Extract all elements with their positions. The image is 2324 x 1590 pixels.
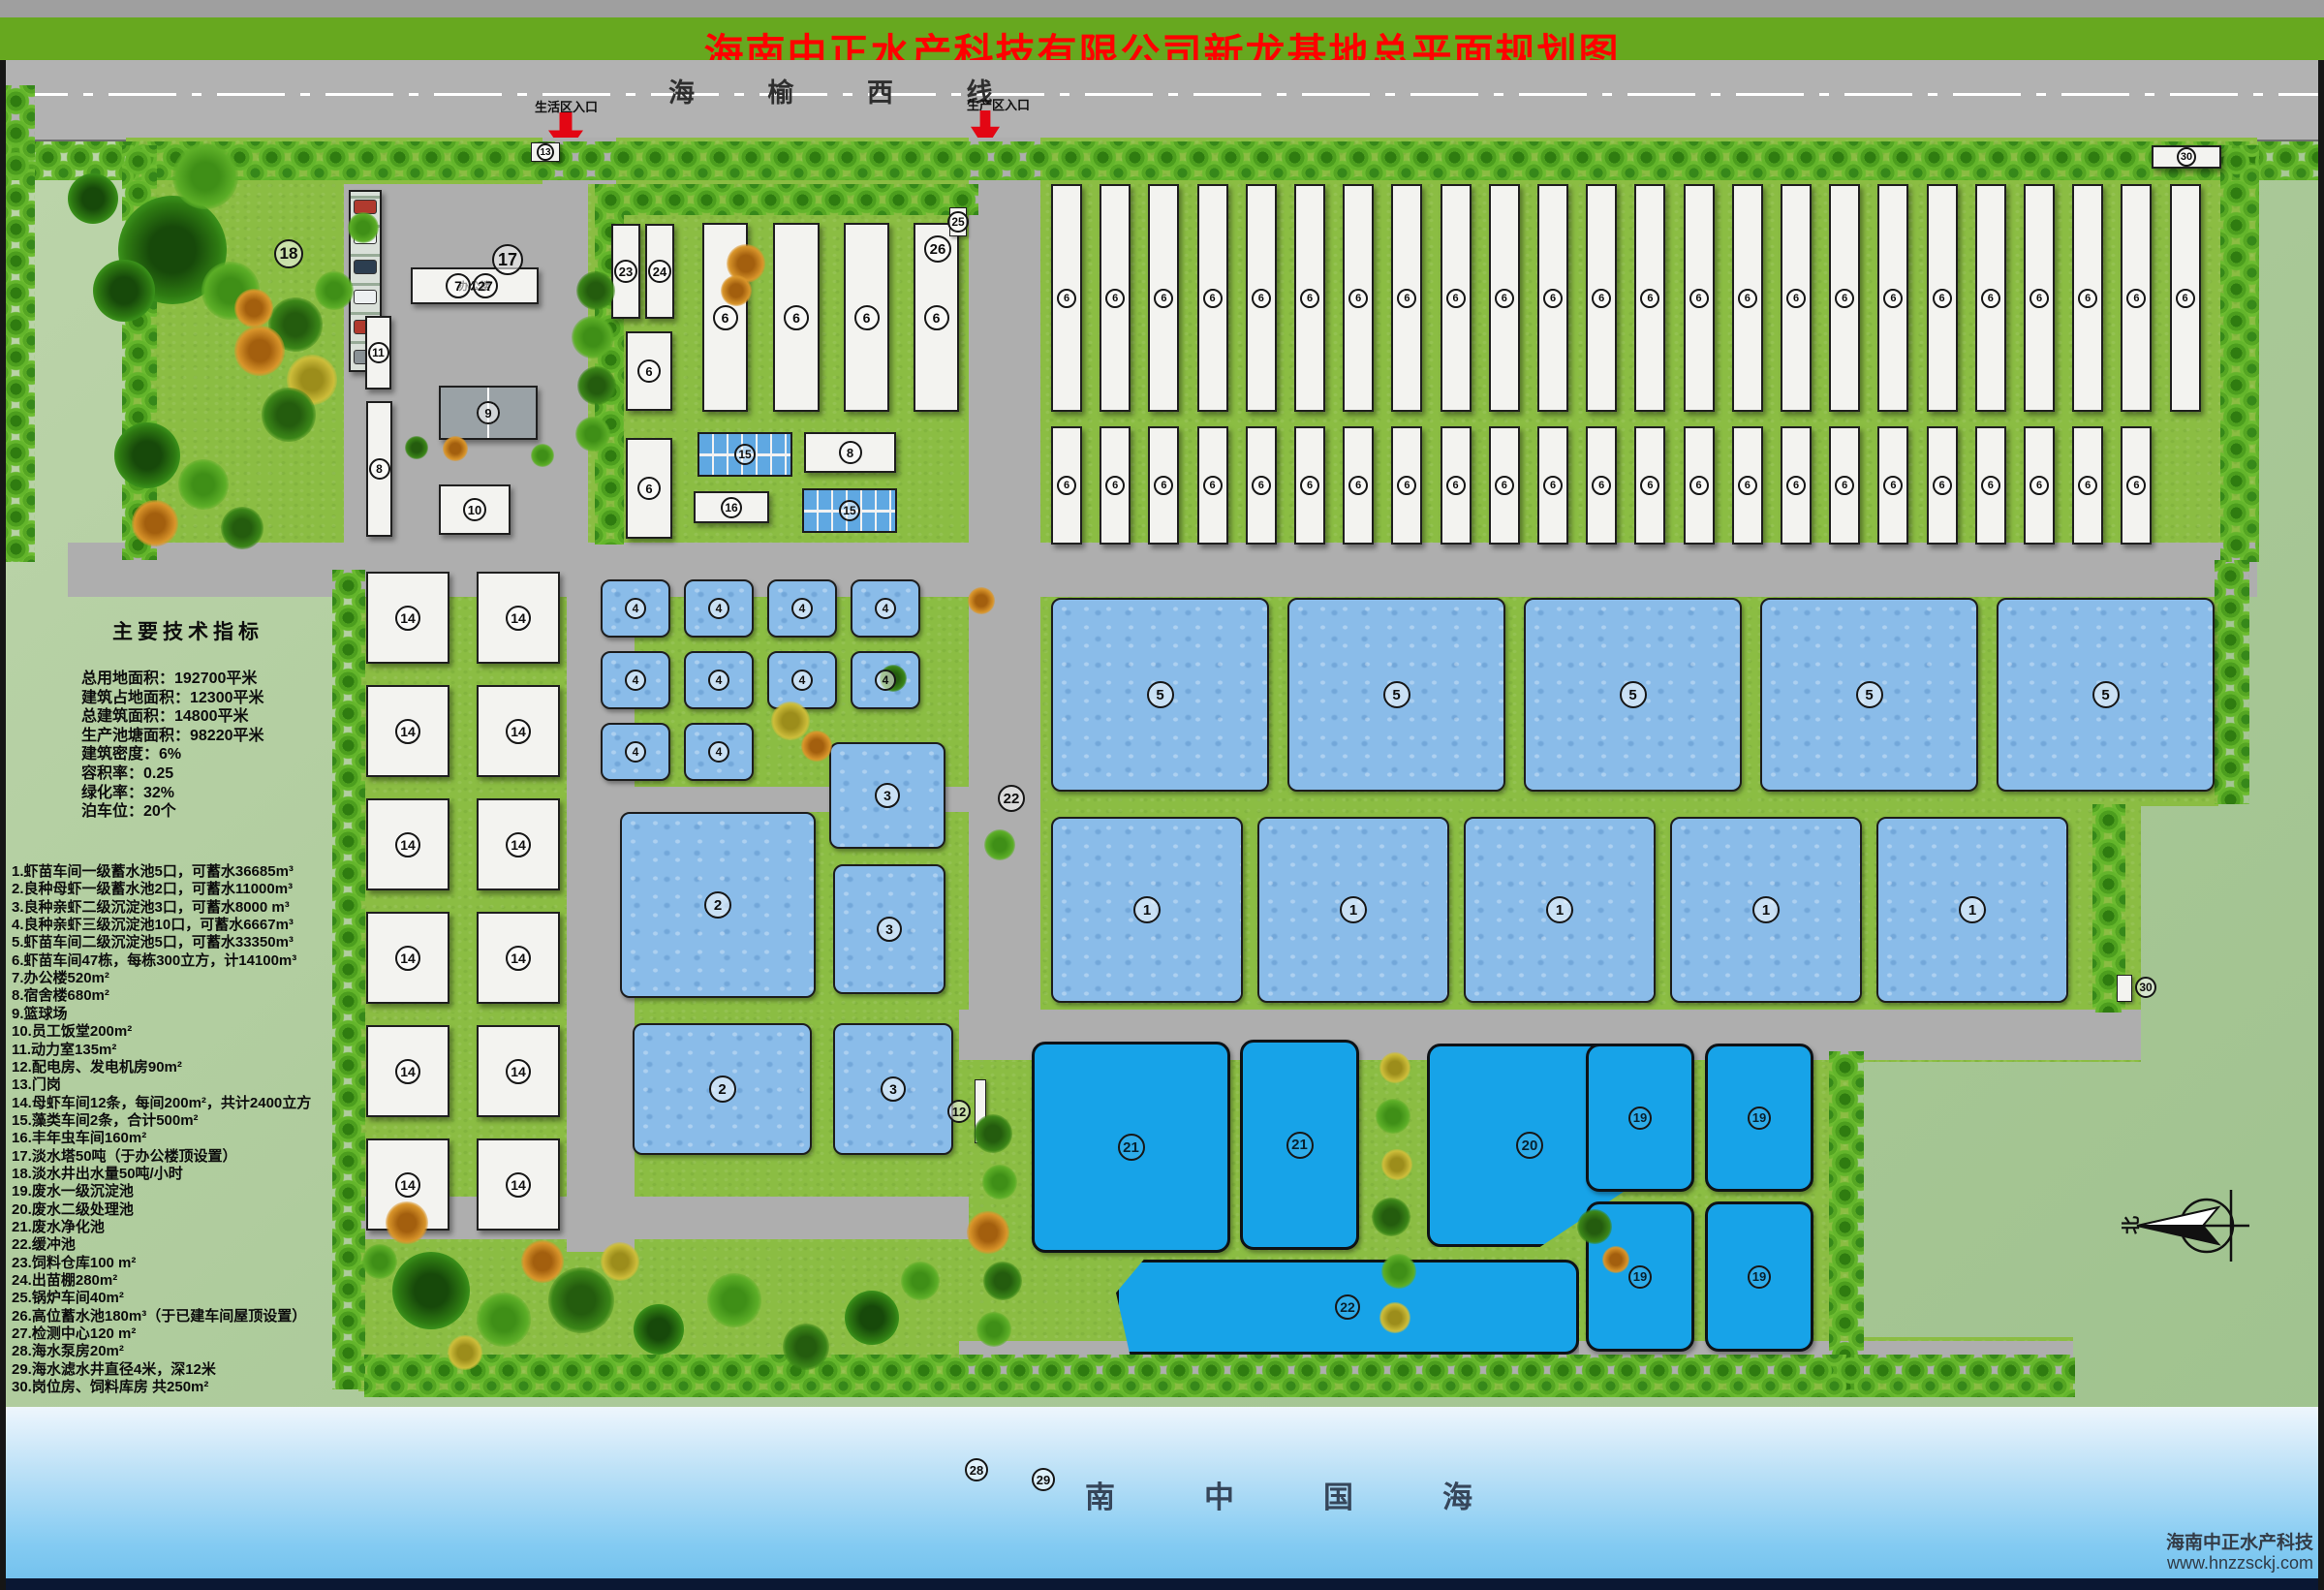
tree-dark [983,1262,1022,1300]
number-marker-13: 13 [537,143,554,161]
broodstock-workshop: 14 [366,798,449,890]
number-marker-6: 6 [1495,289,1514,308]
number-marker-6: 6 [2030,476,2049,495]
number-marker-6: 6 [1300,289,1319,308]
number-marker-6: 6 [784,305,809,330]
tree-mid [178,459,229,510]
number-marker-30: 30 [2135,977,2156,998]
tree-orange [386,1201,428,1244]
number-marker-6: 6 [1592,476,1611,495]
number-marker-6: 6 [1154,289,1173,308]
number-marker-5: 5 [1383,681,1410,708]
right-edge [2318,60,2324,1590]
number-marker-6: 6 [1592,289,1611,308]
tree-dark [221,507,263,549]
number-marker-1: 1 [1546,896,1573,923]
shrimp-workshop: 6 [626,438,672,539]
shrimp-workshop-row: 6 [2170,184,2201,412]
number-marker-6: 6 [1835,289,1854,308]
sea-name-char: 南 [1085,1473,1115,1516]
tree-dark [1372,1198,1410,1236]
tree-dark [1577,1209,1612,1244]
tree-dark [405,436,428,459]
shrimp-workshop-row: 6 [1100,184,1131,412]
tree-mid [982,1165,1017,1200]
tree-dark [577,366,616,405]
number-marker-6: 6 [1689,289,1709,308]
brand-url: www.hnzzsckj.com [2054,1553,2313,1574]
compass-north-icon: 北 [2122,1184,2253,1271]
feed-warehouse: 23 [611,224,640,319]
settling-pond-2: 3 [833,864,945,994]
broodstock-workshop: 14 [477,685,560,777]
number-marker-6: 6 [1252,289,1271,308]
tree-mid [1381,1254,1416,1289]
tree-orange [968,587,995,614]
number-marker-2: 2 [704,891,731,919]
tree-yellow [601,1242,639,1281]
number-marker-6: 6 [2126,289,2146,308]
number-marker-14: 14 [506,606,531,631]
broodstock-workshop: 14 [366,1025,449,1117]
number-marker-6: 6 [1057,289,1076,308]
number-marker-6: 6 [1933,476,1952,495]
number-marker-6: 6 [1738,476,1757,495]
number-marker-1: 1 [1752,896,1780,923]
number-marker-6: 6 [1981,289,2000,308]
shrimp-workshop-row: 6 [1489,184,1520,412]
shrimp-workshop-row: 6 [1051,426,1082,545]
primary-storage-pond: 1 [1464,817,1656,1003]
number-marker-6: 6 [1105,476,1125,495]
settling-pond-2: 3 [829,742,945,849]
shrimp-workshop-row: 6 [1343,184,1374,412]
number-marker-6: 6 [854,305,880,330]
sea-area [0,1407,2324,1578]
purification-pond: 21 [1240,1040,1359,1250]
tree-mid [572,316,614,359]
number-marker-8: 8 [369,458,390,480]
tree-mid [1376,1099,1410,1134]
secondary-settling-pond: 5 [1997,598,2215,792]
number-marker-6: 6 [2030,289,2049,308]
tree-mid [315,271,354,310]
number-marker-6: 6 [1300,476,1319,495]
broodstock-workshop: 14 [366,572,449,664]
tree-orange [521,1240,564,1283]
secondary-settling-pond: 5 [1051,598,1269,792]
algae-workshop: 15 [697,432,792,477]
tree-yellow [448,1335,482,1370]
shrimp-workshop-row: 6 [1197,426,1228,545]
shrimp-workshop-row: 6 [2072,426,2103,545]
broodstock-workshop: 14 [366,912,449,1004]
settling-pond-3: 4 [767,579,837,638]
shrimp-workshop-row: 6 [1537,184,1568,412]
number-marker-6: 6 [1446,476,1466,495]
tree-orange [1602,1246,1629,1273]
guard-feed-store: 30 [2152,145,2221,169]
number-marker-6: 6 [2126,476,2146,495]
number-marker-6: 6 [1543,289,1563,308]
brine-shrimp-workshop: 16 [694,491,769,523]
number-marker-6: 6 [1203,289,1223,308]
number-marker-23: 23 [614,260,637,283]
shrimp-workshop-row: 6 [1829,426,1860,545]
number-marker-1: 1 [1959,896,1986,923]
tree-palm [114,422,180,488]
number-marker-15: 15 [839,500,860,521]
shrimp-workshop-row: 6 [1684,184,1715,412]
shrimp-workshop-row: 6 [1246,184,1277,412]
number-marker-14: 14 [506,1059,531,1084]
shrimp-workshop-row: 6 [1391,184,1422,412]
broodstock-workshop: 14 [477,798,560,890]
primary-storage-pond: 1 [1257,817,1449,1003]
shrimp-workshop-row: 6 [1148,426,1179,545]
internal-road [358,1197,969,1239]
legend-item: 30.岗位房、饲料库房 共250m² [12,1376,208,1396]
number-marker-14: 14 [506,1172,531,1198]
shrimp-workshop-row: 6 [1051,184,1082,412]
site-plan-canvas: 海南中正水产科技有限公司新龙基地总平面规划图 海 榆 西 线 生活区入口 生产区… [0,0,2324,1590]
tree-mid [976,1312,1011,1347]
tree-hedge [595,184,978,215]
number-marker-29: 29 [1032,1468,1055,1491]
left-edge [0,60,6,1590]
broodstock-workshop: 14 [477,912,560,1004]
shrimp-workshop-row: 6 [2121,184,2152,412]
number-marker-6: 6 [1348,476,1368,495]
number-marker-6: 6 [1446,289,1466,308]
tree-mid [362,1244,397,1279]
shrimp-workshop-row: 6 [1634,184,1665,412]
guard-post [2117,975,2132,1002]
tree-orange [132,500,178,546]
number-marker-6: 6 [1835,476,1854,495]
dormitory: 8 [804,432,896,473]
number-marker-5: 5 [1620,681,1647,708]
shrimp-workshop-row: 6 [1441,184,1472,412]
shrimp-workshop-row: 6 [1197,184,1228,412]
number-marker-12: 12 [947,1100,971,1123]
number-marker-26: 26 [924,235,951,263]
number-marker-14: 14 [506,719,531,744]
sea-name-char: 海 [1442,1473,1472,1516]
number-marker-14: 14 [506,832,531,857]
shrimp-workshop-row: 6 [1781,426,1812,545]
number-marker-19: 19 [1748,1265,1771,1289]
number-marker-18: 18 [274,239,303,268]
number-marker-14: 14 [395,606,420,631]
indicator-line: 泊车位：20个 [81,797,176,821]
wastewater-settling-pond: 19 [1586,1044,1694,1192]
number-marker-6: 6 [1981,476,2000,495]
secondary-settling-pond: 5 [1287,598,1505,792]
number-marker-25: 25 [947,211,969,233]
shrimp-workshop-row: 6 [1781,184,1812,412]
tree-orange [801,731,832,762]
number-marker-6: 6 [1203,476,1223,495]
settling-pond-3: 4 [601,579,670,638]
secondary-settling-pond: 5 [1760,598,1978,792]
number-marker-3: 3 [881,1076,906,1102]
storage-pond: 2 [620,812,816,998]
settling-pond-3: 4 [851,651,920,709]
number-marker-5: 5 [1856,681,1883,708]
settling-pond-2: 3 [833,1023,953,1155]
number-marker-6: 6 [1640,476,1659,495]
tree-mid [984,829,1015,860]
number-marker-6: 6 [1348,289,1368,308]
broodstock-workshop: 14 [477,1138,560,1231]
tree-yellow [771,701,810,740]
car [354,290,377,304]
number-marker-6: 6 [1397,289,1416,308]
number-marker-6: 6 [924,305,949,330]
shrimp-workshop-row: 6 [1586,184,1617,412]
shrimp-workshop-row: 6 [1294,184,1325,412]
tree-hedge [364,1355,2075,1397]
tree-palm [68,173,118,224]
number-marker-4: 4 [708,598,729,619]
number-marker-14: 14 [395,946,420,971]
bottom-bar [0,1578,2324,1590]
number-marker-27: 27 [473,273,498,298]
tree-palm [93,260,155,322]
number-marker-6: 6 [1252,476,1271,495]
tree-mid [707,1273,761,1327]
tree-dark [576,271,615,310]
shrimp-workshop-row: 6 [1441,426,1472,545]
shrimp-workshop-row: 6 [1877,184,1908,412]
shrimp-workshop-row: 6 [1927,426,1958,545]
number-marker-21: 21 [1118,1134,1145,1161]
storage-pond: 2 [633,1023,812,1155]
shrimp-workshop-row: 6 [2121,426,2152,545]
primary-storage-pond: 1 [1670,817,1862,1003]
broodstock-workshop: 14 [477,572,560,664]
tree-mid [901,1262,940,1300]
number-marker-6: 6 [1105,289,1125,308]
shrimp-workshop-row: 6 [1586,426,1617,545]
number-marker-20: 20 [1516,1132,1543,1159]
number-marker-6: 6 [1689,476,1709,495]
number-marker-6: 6 [1495,476,1514,495]
number-marker-6: 6 [1057,476,1076,495]
shrimp-workshop-row: 6 [1975,184,2006,412]
shrimp-workshop-row: 6 [2072,184,2103,412]
indicators-title: 主要技术指标 [112,616,263,645]
number-marker-6: 6 [1640,289,1659,308]
primary-storage-pond: 1 [1876,817,2068,1003]
power-room: 11 [365,316,391,390]
number-marker-1: 1 [1340,896,1367,923]
tree-yellow [1379,1052,1410,1083]
number-marker-8: 8 [839,441,862,464]
shrimp-workshop-row: 6 [1684,426,1715,545]
number-marker-17: 17 [492,244,523,275]
shrimp-workshop-row: 6 [1100,426,1131,545]
number-marker-6: 6 [1786,289,1806,308]
number-marker-19: 19 [1628,1265,1652,1289]
tree-orange [234,289,273,327]
number-marker-2: 2 [709,1076,736,1103]
number-marker-1: 1 [1133,896,1161,923]
broodstock-workshop: 14 [366,685,449,777]
number-marker-22: 22 [998,785,1025,812]
settling-pond-3: 4 [684,723,754,781]
tree-palm [845,1291,899,1345]
tree-hedge [1829,1051,1864,1390]
number-marker-6: 6 [1883,476,1903,495]
number-marker-6: 6 [1397,476,1416,495]
number-marker-6: 6 [637,477,661,500]
dormitory: 8 [366,401,392,537]
number-marker-4: 4 [708,670,729,691]
shrimp-workshop-row: 6 [1829,184,1860,412]
number-marker-5: 5 [2092,681,2120,708]
number-marker-21: 21 [1286,1132,1314,1159]
shrimp-workshop-row: 6 [1294,426,1325,545]
shrimp-workshop-row: 6 [1343,426,1374,545]
number-marker-9: 9 [477,401,500,424]
car [354,260,377,274]
number-marker-11: 11 [368,342,389,363]
number-marker-15: 15 [734,444,756,465]
tree-hedge [2215,560,2249,804]
wastewater-settling-pond: 19 [1705,1201,1813,1352]
number-marker-6: 6 [1154,476,1173,495]
secondary-settling-pond: 5 [1524,598,1742,792]
tree-hedge [2220,145,2259,562]
entrance-label-production: 生产区入口 [967,95,1030,113]
shrimp-workshop: 6 [844,223,889,412]
broodstock-workshop: 14 [477,1025,560,1117]
tree-mid [531,444,554,467]
shrimp-workshop: 6 [773,223,820,412]
tree-mid [477,1293,531,1347]
shrimp-workshop-row: 6 [2024,426,2055,545]
highway-band [0,60,2324,141]
shrimp-workshop-row: 6 [1634,426,1665,545]
wastewater-settling-pond: 19 [1705,1044,1813,1192]
number-marker-6: 6 [1543,476,1563,495]
tree-dark [974,1114,1012,1153]
number-marker-14: 14 [506,946,531,971]
brand-block: 海南中正水产科技 www.hnzzsckj.com [2054,1533,2313,1574]
sea-name-char: 国 [1323,1473,1353,1516]
number-marker-4: 4 [875,670,896,691]
svg-text:北: 北 [2122,1216,2142,1234]
number-marker-16: 16 [721,497,742,518]
highway-centerline [0,93,2324,96]
number-marker-14: 14 [395,719,420,744]
number-marker-6: 6 [2078,476,2097,495]
tree-palm [392,1252,470,1329]
purification-pond: 21 [1032,1042,1230,1253]
tree-orange [721,275,752,306]
tree-mid [172,143,238,209]
number-marker-6: 6 [2176,289,2195,308]
settling-pond-3: 4 [601,651,670,709]
number-marker-7: 7 [446,273,471,298]
number-marker-14: 14 [395,1059,420,1084]
number-marker-3: 3 [877,917,902,942]
tree-hedge [0,141,2324,180]
number-marker-14: 14 [395,832,420,857]
tree-mid [348,212,379,243]
brand-name: 海南中正水产科技 [2054,1533,2313,1553]
shrimp-workshop-row: 6 [1148,184,1179,412]
tree-yellow [1381,1149,1412,1180]
shrimp-workshop: 6 [626,331,672,411]
top-strip [0,0,2324,18]
number-marker-6: 6 [1738,289,1757,308]
number-marker-4: 4 [625,741,646,763]
shrimp-workshop-row: 6 [1246,426,1277,545]
basketball-court: 9 [439,386,538,440]
number-marker-28: 28 [965,1458,988,1481]
shrimp-workshop-row: 6 [1732,184,1763,412]
number-marker-4: 4 [708,741,729,763]
number-marker-24: 24 [648,260,671,283]
shrimp-workshop-row: 6 [1537,426,1568,545]
settling-pond-3: 4 [684,651,754,709]
settling-pond-3: 4 [684,579,754,638]
number-marker-6: 6 [2078,289,2097,308]
tree-yellow [1379,1302,1410,1333]
number-marker-4: 4 [875,598,896,619]
tree-palm [634,1304,684,1355]
number-marker-19: 19 [1748,1107,1771,1130]
number-marker-4: 4 [791,598,813,619]
shrimp-workshop-row: 6 [1877,426,1908,545]
number-marker-4: 4 [625,670,646,691]
shrimp-workshop-row: 6 [1927,184,1958,412]
tree-orange [234,326,285,376]
canteen: 10 [439,484,511,535]
buffer-pond: 22 [1116,1260,1579,1355]
number-marker-19: 19 [1628,1107,1652,1130]
number-marker-30: 30 [2177,147,2196,167]
algae-workshop: 15 [802,488,897,533]
sea-name-char: 中 [1204,1473,1234,1516]
number-marker-6: 6 [713,305,738,330]
primary-storage-pond: 1 [1051,817,1243,1003]
number-marker-14: 14 [395,1172,420,1198]
tree-dark [262,388,316,442]
number-marker-4: 4 [625,598,646,619]
shrimp-workshop-row: 6 [1975,426,2006,545]
number-marker-6: 6 [1786,476,1806,495]
tree-dark [783,1324,829,1370]
fry-shed: 24 [645,224,674,319]
tree-orange [443,436,468,461]
shrimp-workshop-row: 6 [1732,426,1763,545]
tree-dark [548,1267,614,1333]
shrimp-workshop-row: 6 [2024,184,2055,412]
number-marker-6: 6 [1883,289,1903,308]
tree-hedge [332,570,365,1389]
number-marker-10: 10 [463,498,486,521]
tree-mid [575,417,610,452]
number-marker-3: 3 [875,783,900,808]
number-marker-6: 6 [1933,289,1952,308]
shrimp-workshop-row: 6 [1489,426,1520,545]
number-marker-6: 6 [637,359,661,383]
shrimp-workshop-row: 6 [1391,426,1422,545]
